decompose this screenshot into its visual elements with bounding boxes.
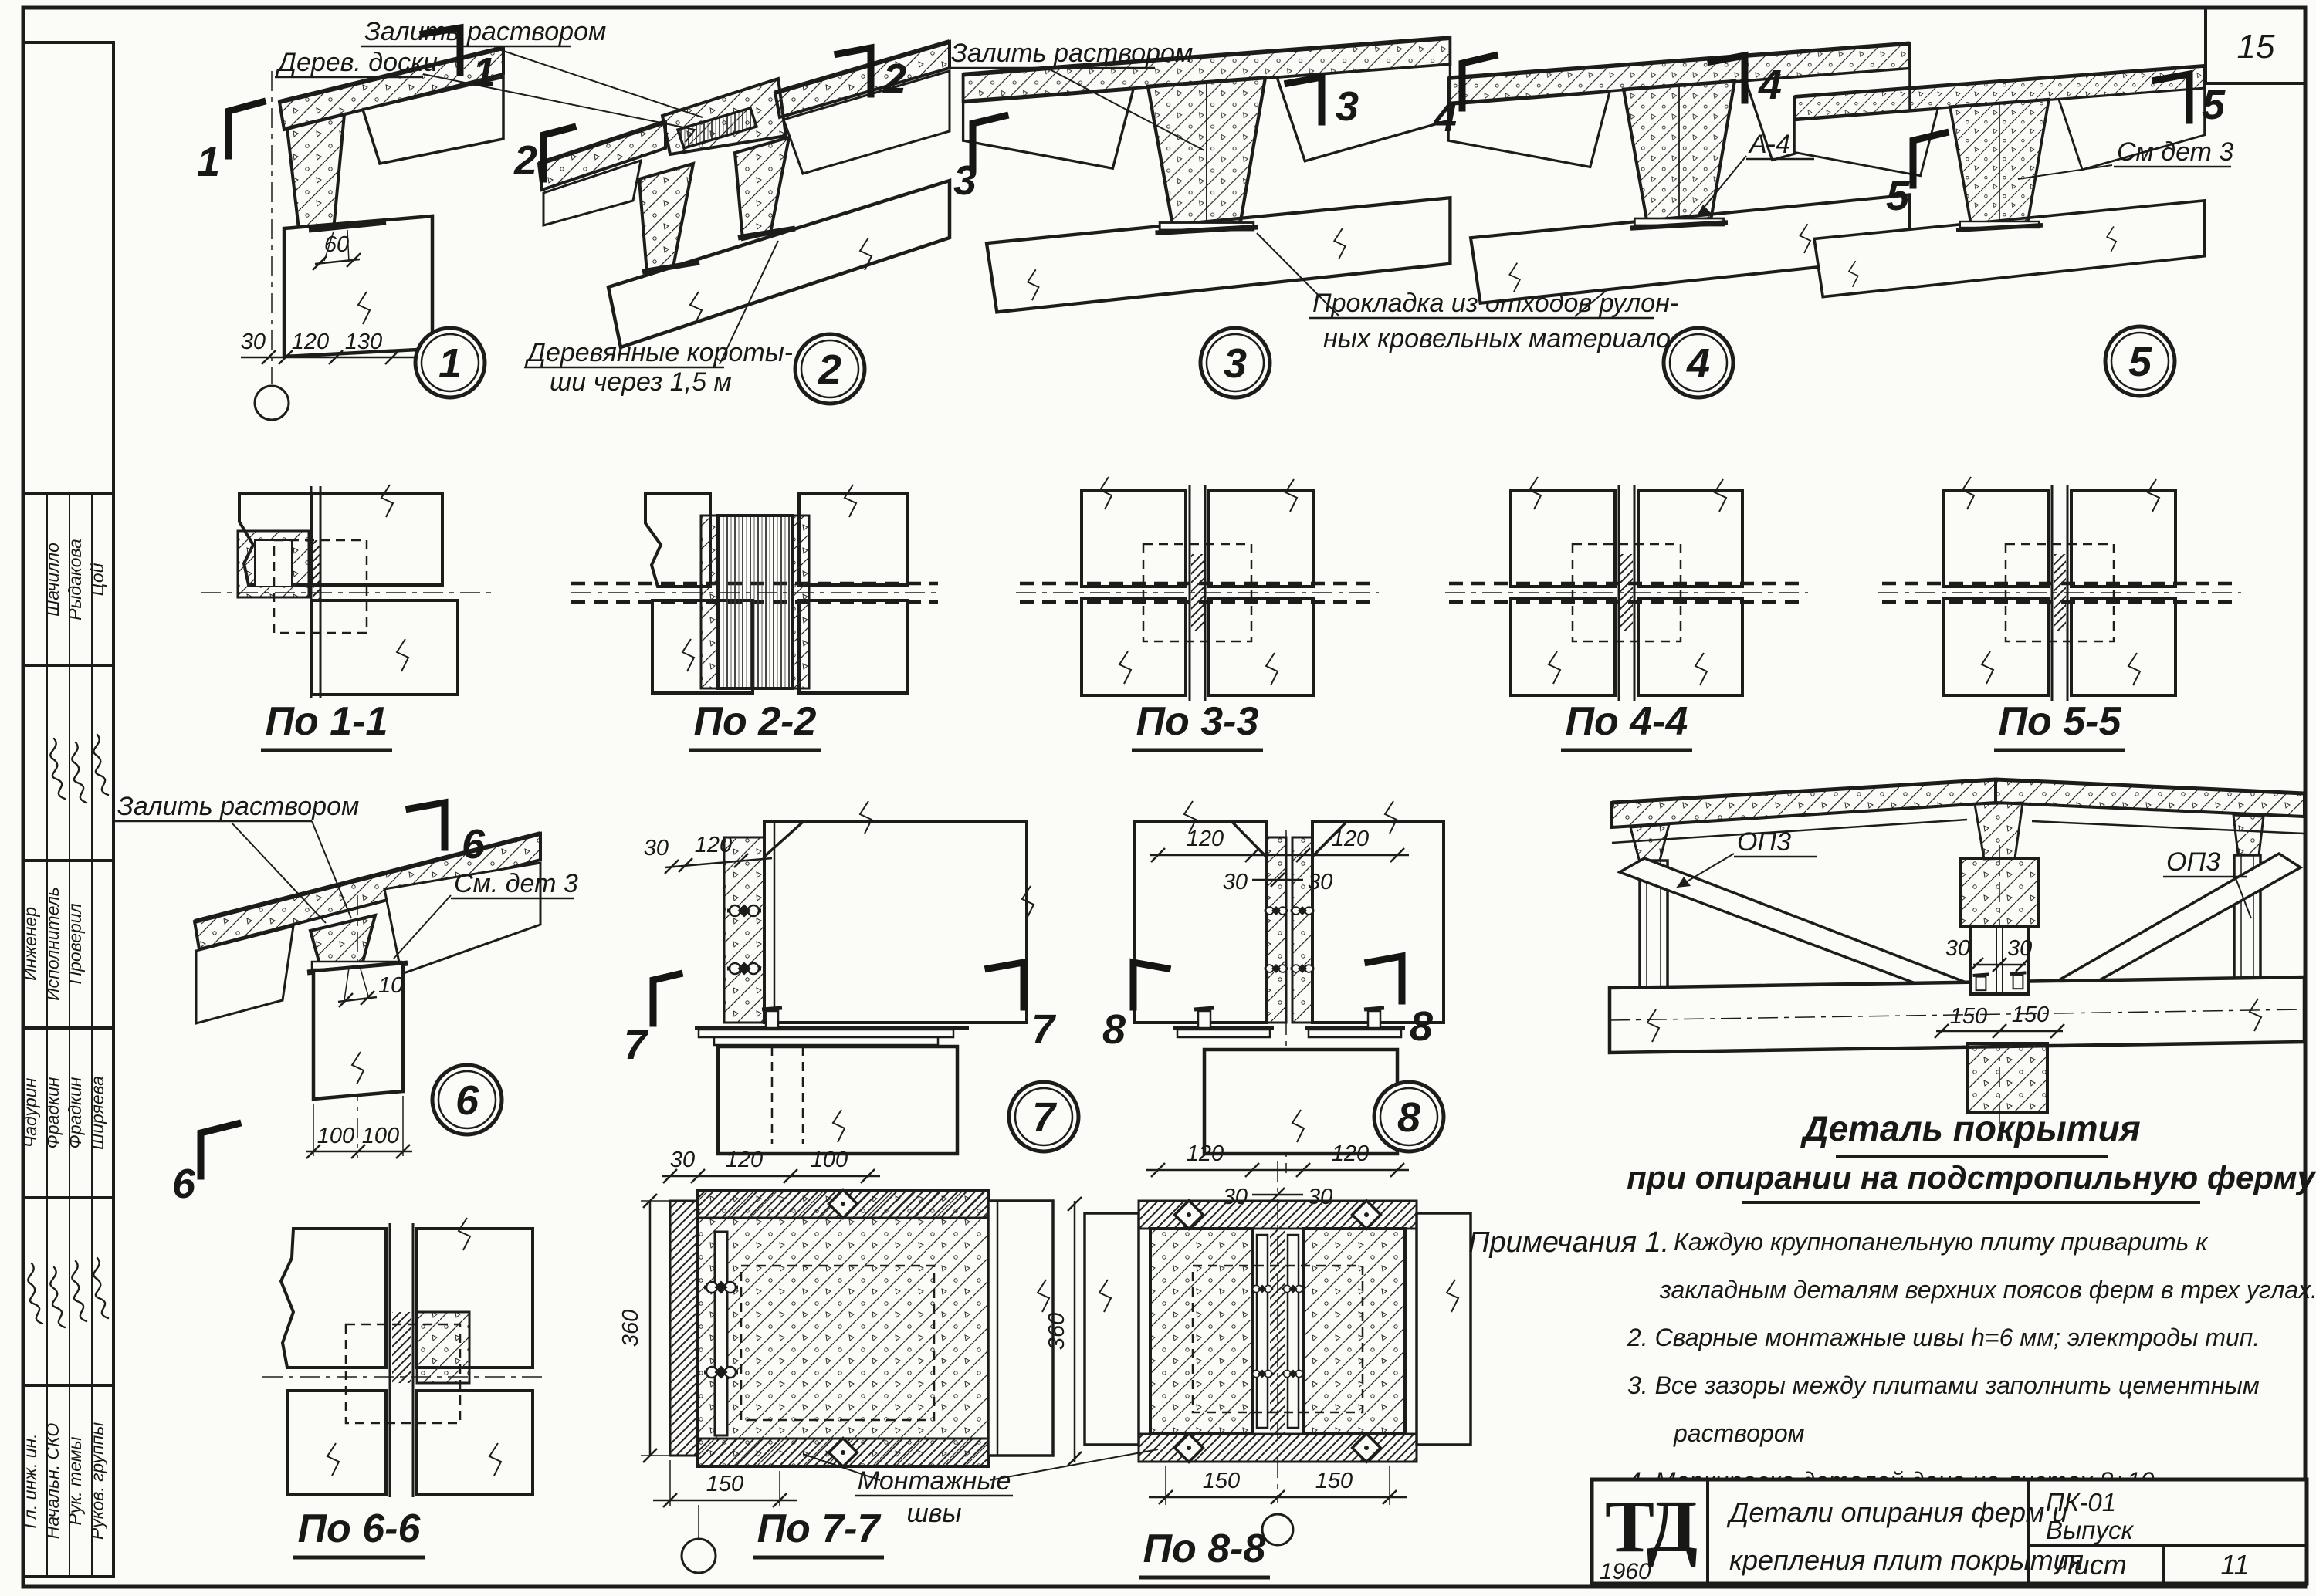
drawing-sheet: 15 Шачилло Рыдакова Цой Инженер Исполнит… — [0, 0, 2316, 1596]
svg-text:150: 150 — [2012, 1003, 2049, 1027]
section-view-8-8: 120 120 30 30 360 150 150 По 8-8 — [1045, 1141, 1471, 1577]
svg-text:8: 8 — [1397, 1094, 1420, 1141]
svg-text:8: 8 — [1410, 1003, 1433, 1050]
svg-text:7: 7 — [1031, 1006, 1057, 1053]
detail-circle-3: 3 — [1200, 328, 1270, 397]
sidebar-name: Фрадкин — [65, 1077, 85, 1148]
sidebar: Шачилло Рыдакова Цой Инженер Исполнитель… — [20, 42, 113, 1577]
drawing-title-line1: Детали опирания ферм и — [1726, 1496, 2067, 1528]
section-label: По 4-4 — [1561, 699, 1692, 750]
sheet-number: 11 — [2220, 1549, 2249, 1581]
svg-text:150: 150 — [706, 1472, 743, 1496]
drawing-title-line2: крепления плит покрытия — [1729, 1544, 2084, 1576]
svg-text:60: 60 — [324, 232, 349, 257]
sidebar-name: Фрадкин — [42, 1077, 63, 1148]
sidebar-name: Цой — [87, 563, 107, 596]
svg-text:360: 360 — [618, 1310, 643, 1347]
svg-text:См дет 3: См дет 3 — [2117, 137, 2233, 167]
section-view-1-1: По 1-1 — [201, 485, 494, 750]
sidebar-title: Проверил — [65, 903, 85, 984]
svg-text:По 2-2: По 2-2 — [694, 699, 817, 744]
svg-text:8: 8 — [1102, 1006, 1126, 1053]
note-line: 2. Сварные монтажные швы h=6 мм; электро… — [1627, 1324, 2260, 1351]
svg-text:швы: швы — [907, 1499, 962, 1528]
detail-6: 10 100 100 Залить раствором См. дет 3 6 … — [114, 792, 578, 1207]
sidebar-titles: Инженер Исполнитель Проверил — [20, 887, 85, 1001]
section-label: По 8-8 — [1139, 1527, 1270, 1577]
svg-text:Залить раствором: Залить раствором — [117, 792, 359, 821]
signature-squiggle — [50, 739, 65, 799]
doc-issue: Выпуск — [2046, 1516, 2134, 1544]
sidebar-roles: Гл. инж. ин. Начальн. СКО Рук. темы Руко… — [20, 1422, 107, 1540]
svg-text:100: 100 — [362, 1124, 399, 1148]
section-view-7-7: 30 120 100 360 150 По 7-7 — [618, 1148, 1053, 1573]
svg-text:10: 10 — [378, 973, 403, 998]
svg-text:7: 7 — [624, 1022, 649, 1068]
svg-text:По 3-3: По 3-3 — [1136, 699, 1259, 744]
note-line: закладным деталям верхних поясов ферм в … — [1659, 1276, 2316, 1304]
section-flag-6: 6 — [172, 1124, 238, 1207]
detail-1: 60 30 120 130 1 1 1 — [197, 28, 503, 420]
svg-text:1: 1 — [438, 340, 462, 387]
svg-text:6: 6 — [455, 1077, 479, 1124]
sheet-number-box: 15 — [2206, 8, 2305, 83]
signature-squiggle — [72, 742, 86, 803]
svg-text:30: 30 — [1945, 936, 1970, 961]
signature-squiggle — [93, 1258, 108, 1318]
sidebar-name: Ширяева — [87, 1076, 107, 1150]
svg-text:360: 360 — [1045, 1313, 1069, 1350]
svg-text:Залить раствором: Залить раствором — [951, 39, 1193, 68]
sidebar-role: Руков. группы — [87, 1422, 107, 1540]
signature-squiggle — [28, 1263, 42, 1324]
sidebar-role: Рук. темы — [65, 1436, 85, 1525]
svg-text:По 5-5: По 5-5 — [1999, 699, 2122, 744]
axis-circle — [255, 386, 289, 420]
svg-text:ши через 1,5 м: ши через 1,5 м — [550, 367, 732, 397]
svg-text:Залить раствором: Залить раствором — [364, 17, 606, 46]
axis-circle — [682, 1539, 716, 1573]
svg-text:Деталь покрытия: Деталь покрытия — [1800, 1108, 2141, 1148]
svg-text:7: 7 — [1032, 1094, 1058, 1141]
notes: Примечания 1. Каждую крупнопанельную пли… — [1468, 1226, 2316, 1495]
sheet-corner-number: 15 — [2237, 28, 2275, 66]
svg-text:120: 120 — [726, 1148, 763, 1172]
detail-8: 120 120 30 30 8 8 8 — [1102, 801, 1444, 1173]
svg-text:100: 100 — [811, 1148, 848, 1172]
signature-squiggle — [72, 1261, 86, 1321]
svg-text:30: 30 — [644, 836, 669, 861]
note-line: 3. Все зазоры между плитами заполнить це… — [1627, 1371, 2260, 1399]
svg-text:4: 4 — [1686, 340, 1710, 387]
sidebar-title: Исполнитель — [42, 887, 63, 1001]
svg-text:Деревянные короты-: Деревянные короты- — [524, 338, 793, 367]
sidebar-role: Гл. инж. ин. — [20, 1433, 40, 1528]
svg-text:30: 30 — [241, 330, 266, 354]
svg-text:По 8-8: По 8-8 — [1143, 1527, 1266, 1571]
svg-text:По 4-4: По 4-4 — [1566, 699, 1688, 744]
section-flag-7: 7 — [624, 974, 679, 1068]
doc-code: ПК-01 — [2046, 1488, 2116, 1517]
svg-text:4: 4 — [1758, 62, 1782, 108]
sidebar-role: Начальн. СКО — [42, 1423, 63, 1540]
note-line: раствором — [1673, 1419, 1805, 1447]
detail-7: 30 120 7 7 7 — [624, 801, 1078, 1154]
sidebar-name: Рыдакова — [65, 539, 85, 620]
svg-text:130: 130 — [345, 330, 382, 354]
svg-text:ТД: ТД — [1605, 1485, 1697, 1567]
svg-text:Дерев. доски: Дерев. доски — [275, 48, 438, 77]
section-label: По 6-6 — [293, 1506, 425, 1557]
sheet-label: Лист — [2054, 1549, 2127, 1581]
signature-squiggle — [93, 735, 108, 795]
dimension-bottom: 100 100 — [306, 1096, 412, 1158]
svg-text:150: 150 — [1315, 1469, 1353, 1493]
svg-text:2: 2 — [882, 56, 906, 102]
svg-text:150: 150 — [1203, 1469, 1240, 1493]
detail-circle-8: 8 — [1374, 1082, 1444, 1151]
detail-circle-5: 5 — [2105, 326, 2175, 396]
detail-circle-2: 2 — [795, 334, 865, 404]
section-view-5-5: По 5-5 — [1878, 477, 2241, 750]
svg-text:120: 120 — [1187, 1141, 1224, 1166]
sidebar-signatures-bottom — [28, 1258, 108, 1327]
section-view-4-4: По 4-4 — [1445, 477, 1808, 750]
section-view-3-3: По 3-3 — [1016, 477, 1379, 750]
svg-text:По 1-1: По 1-1 — [266, 699, 388, 744]
title-block: ТД 1960 Детали опирания ферм и крепления… — [1592, 1479, 2307, 1584]
svg-text:120: 120 — [695, 833, 732, 857]
section-flag-1: 1 — [197, 102, 262, 185]
svg-text:5: 5 — [2202, 82, 2226, 128]
svg-text:120: 120 — [1187, 827, 1224, 851]
svg-text:100: 100 — [317, 1124, 354, 1148]
svg-text:ОП3: ОП3 — [1737, 827, 1791, 857]
svg-text:По 7-7: По 7-7 — [757, 1506, 882, 1551]
svg-text:2: 2 — [513, 137, 537, 184]
section-label: По 5-5 — [1994, 699, 2125, 750]
section-label: По 3-3 — [1132, 699, 1263, 750]
notes-heading: Примечания 1. — [1468, 1226, 1669, 1259]
sidebar-name: Шачилло — [42, 543, 63, 617]
section-view-6-6: По 6-6 — [262, 1218, 547, 1557]
sidebar-names-top: Шачилло Рыдакова Цой — [42, 539, 107, 620]
sidebar-names-mid: Чадурин Фрадкин Фрадкин Ширяева — [20, 1076, 107, 1150]
svg-text:150: 150 — [1950, 1004, 1987, 1029]
sidebar-title: Инженер — [20, 907, 40, 981]
label-see-detail-3: См дет 3 — [2018, 137, 2233, 179]
svg-text:120: 120 — [292, 330, 329, 354]
axis-circle — [1262, 1514, 1293, 1545]
svg-text:См. дет 3: См. дет 3 — [454, 869, 578, 898]
svg-text:2: 2 — [818, 347, 841, 393]
section-label: По 7-7 — [753, 1506, 884, 1557]
detail-circle-4: 4 — [1664, 328, 1733, 397]
signature-squiggle — [50, 1267, 65, 1327]
svg-text:5: 5 — [2128, 339, 2152, 385]
sidebar-signatures-top — [50, 735, 108, 803]
svg-text:По 6-6: По 6-6 — [298, 1506, 422, 1551]
logo-year: 1960 — [1600, 1559, 1651, 1584]
svg-text:5: 5 — [1886, 173, 1910, 219]
section-view-2-2: По 2-2 — [571, 485, 938, 750]
sidebar-name: Чадурин — [20, 1077, 40, 1148]
detail-circle-7: 7 — [1009, 1082, 1078, 1151]
svg-text:3: 3 — [1336, 83, 1359, 130]
big-detail: 30 30 150 150 ОП3 ОП3 Деталь покрытия пр… — [1610, 779, 2316, 1202]
svg-text:120: 120 — [1332, 827, 1369, 851]
svg-text:30: 30 — [1308, 870, 1332, 894]
svg-text:ОП3: ОП3 — [2166, 847, 2220, 877]
svg-text:6: 6 — [172, 1161, 196, 1207]
note-line: Каждую крупнопанельную плиту приварить к — [1674, 1228, 2209, 1256]
svg-text:30: 30 — [2007, 936, 2032, 961]
svg-text:30: 30 — [1223, 870, 1248, 894]
svg-text:3: 3 — [953, 157, 977, 204]
svg-text:А-4: А-4 — [1748, 130, 1790, 159]
svg-text:ных кровельных материалов: ных кровельных материалов — [1323, 324, 1685, 353]
svg-text:при опирании на подстропильную: при опирании на подстропильную ферму — [1627, 1159, 2316, 1195]
detail-circle-6: 6 — [432, 1065, 502, 1134]
big-detail-title: Деталь покрытия при опирании на подстроп… — [1627, 1108, 2316, 1202]
section-label: По 2-2 — [689, 699, 821, 750]
detail-circle-1: 1 — [415, 328, 485, 397]
svg-text:Монтажные: Монтажные — [858, 1466, 1011, 1496]
svg-text:1: 1 — [197, 139, 220, 185]
section-label: По 1-1 — [261, 699, 392, 750]
svg-text:120: 120 — [1332, 1141, 1369, 1166]
svg-text:3: 3 — [1224, 340, 1247, 387]
svg-text:30: 30 — [670, 1148, 695, 1172]
svg-text:4: 4 — [1433, 94, 1457, 140]
svg-text:6: 6 — [462, 821, 486, 867]
